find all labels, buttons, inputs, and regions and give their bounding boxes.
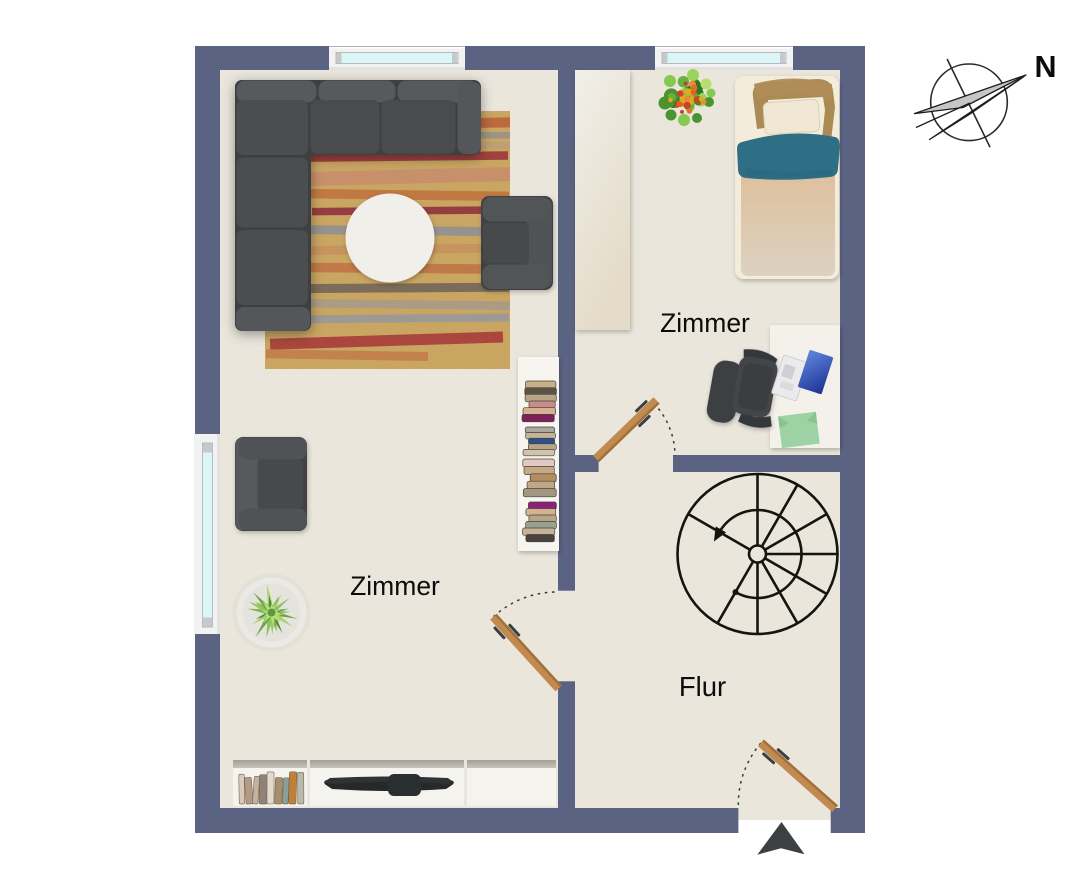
svg-text:Zimmer: Zimmer	[350, 571, 440, 601]
svg-text:N: N	[1035, 50, 1057, 84]
svg-text:Flur: Flur	[679, 671, 726, 702]
svg-text:Zimmer: Zimmer	[660, 308, 750, 338]
